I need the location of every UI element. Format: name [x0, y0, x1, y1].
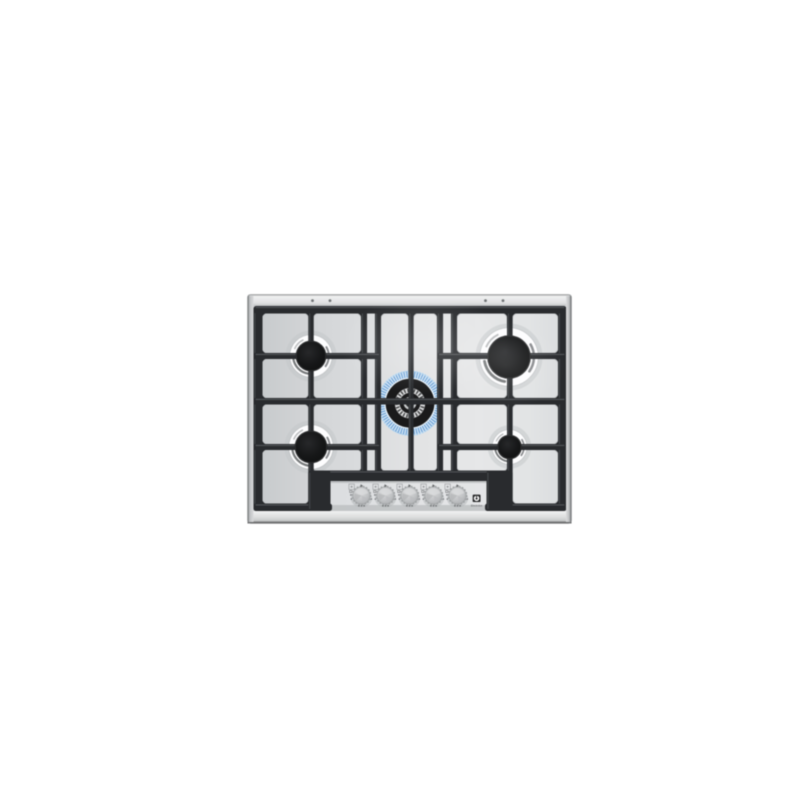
- svg-text:Electrolux: Electrolux: [471, 503, 483, 507]
